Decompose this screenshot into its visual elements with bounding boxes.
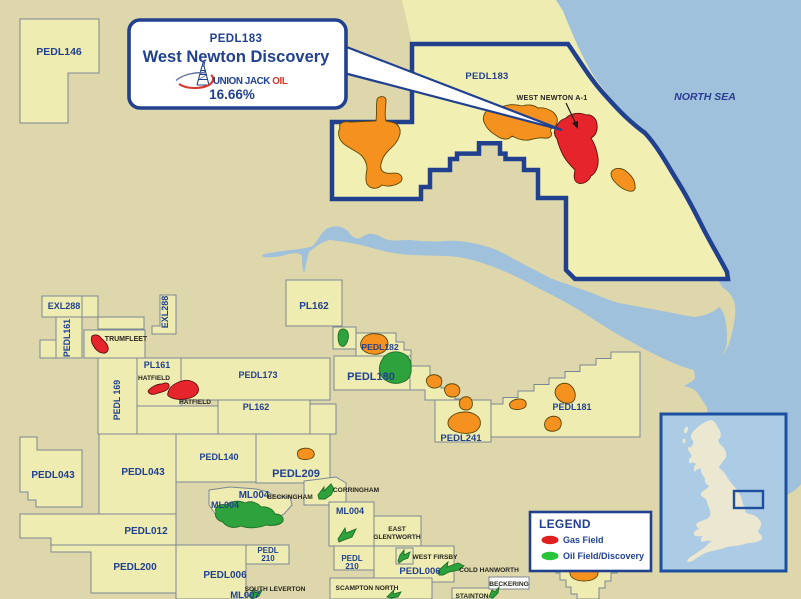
svg-text:PEDL209: PEDL209 xyxy=(272,468,320,480)
svg-text:PEDL200: PEDL200 xyxy=(113,562,157,573)
svg-text:210: 210 xyxy=(261,554,275,563)
svg-text:BECKINGHAM: BECKINGHAM xyxy=(267,494,313,501)
svg-text:SCAMPTON NORTH: SCAMPTON NORTH xyxy=(336,585,399,592)
svg-text:EXL288: EXL288 xyxy=(160,296,170,329)
svg-text:PEDL146: PEDL146 xyxy=(36,46,82,58)
svg-text:LEGEND: LEGEND xyxy=(539,517,591,531)
svg-text:PEDL043: PEDL043 xyxy=(31,470,75,481)
svg-text:210: 210 xyxy=(345,562,359,571)
svg-text:NORTH SEA: NORTH SEA xyxy=(674,91,736,103)
svg-text:PEDL181: PEDL181 xyxy=(552,402,591,412)
svg-text:PEDL 169: PEDL 169 xyxy=(112,380,122,421)
svg-text:PEDL140: PEDL140 xyxy=(199,452,238,462)
svg-text:PEDL043: PEDL043 xyxy=(121,467,165,478)
svg-text:UNION JACK OIL: UNION JACK OIL xyxy=(213,76,288,87)
svg-text:WEST FIRSBY: WEST FIRSBY xyxy=(412,554,458,561)
svg-text:COLD HANWORTH: COLD HANWORTH xyxy=(459,567,519,574)
svg-text:Gas Field: Gas Field xyxy=(563,535,604,545)
svg-text:Oil Field/Discovery: Oil Field/Discovery xyxy=(563,551,644,561)
svg-text:CORRINGHAM: CORRINGHAM xyxy=(333,487,380,494)
svg-text:SOUTH LEVERTON: SOUTH LEVERTON xyxy=(245,586,306,593)
svg-text:West Newton Discovery: West Newton Discovery xyxy=(143,48,331,66)
svg-text:STAINTON: STAINTON xyxy=(455,593,488,599)
svg-text:EXL288: EXL288 xyxy=(48,301,81,311)
svg-text:ML004: ML004 xyxy=(211,500,239,510)
svg-text:PEDL182: PEDL182 xyxy=(361,342,398,352)
svg-text:PEDL012: PEDL012 xyxy=(124,526,168,537)
svg-text:PEDL241: PEDL241 xyxy=(440,433,482,444)
svg-text:WEST NEWTON A-1: WEST NEWTON A-1 xyxy=(517,93,588,102)
svg-text:PL161: PL161 xyxy=(144,360,171,370)
svg-text:PEDL006: PEDL006 xyxy=(399,566,440,577)
svg-text:ML004: ML004 xyxy=(336,506,364,516)
svg-text:PL162: PL162 xyxy=(243,402,270,412)
svg-text:PEDL006: PEDL006 xyxy=(203,570,247,581)
svg-text:PEDL161: PEDL161 xyxy=(62,319,72,357)
svg-text:EAST: EAST xyxy=(388,526,406,533)
svg-text:TRUMFLEET: TRUMFLEET xyxy=(105,336,148,343)
svg-text:PEDL183: PEDL183 xyxy=(210,33,263,45)
svg-text:PEDL180: PEDL180 xyxy=(347,371,395,383)
svg-text:PL162: PL162 xyxy=(299,301,329,312)
svg-text:16.66%: 16.66% xyxy=(209,87,255,102)
svg-text:ML004: ML004 xyxy=(239,490,270,501)
svg-text:BECKERING: BECKERING xyxy=(489,581,529,588)
svg-text:PEDL173: PEDL173 xyxy=(238,370,277,380)
svg-text:PEDL183: PEDL183 xyxy=(465,71,508,82)
svg-text:HATFIELD: HATFIELD xyxy=(179,399,211,406)
svg-text:GLENTWORTH: GLENTWORTH xyxy=(373,534,420,541)
svg-text:HATFIELD: HATFIELD xyxy=(138,375,170,382)
